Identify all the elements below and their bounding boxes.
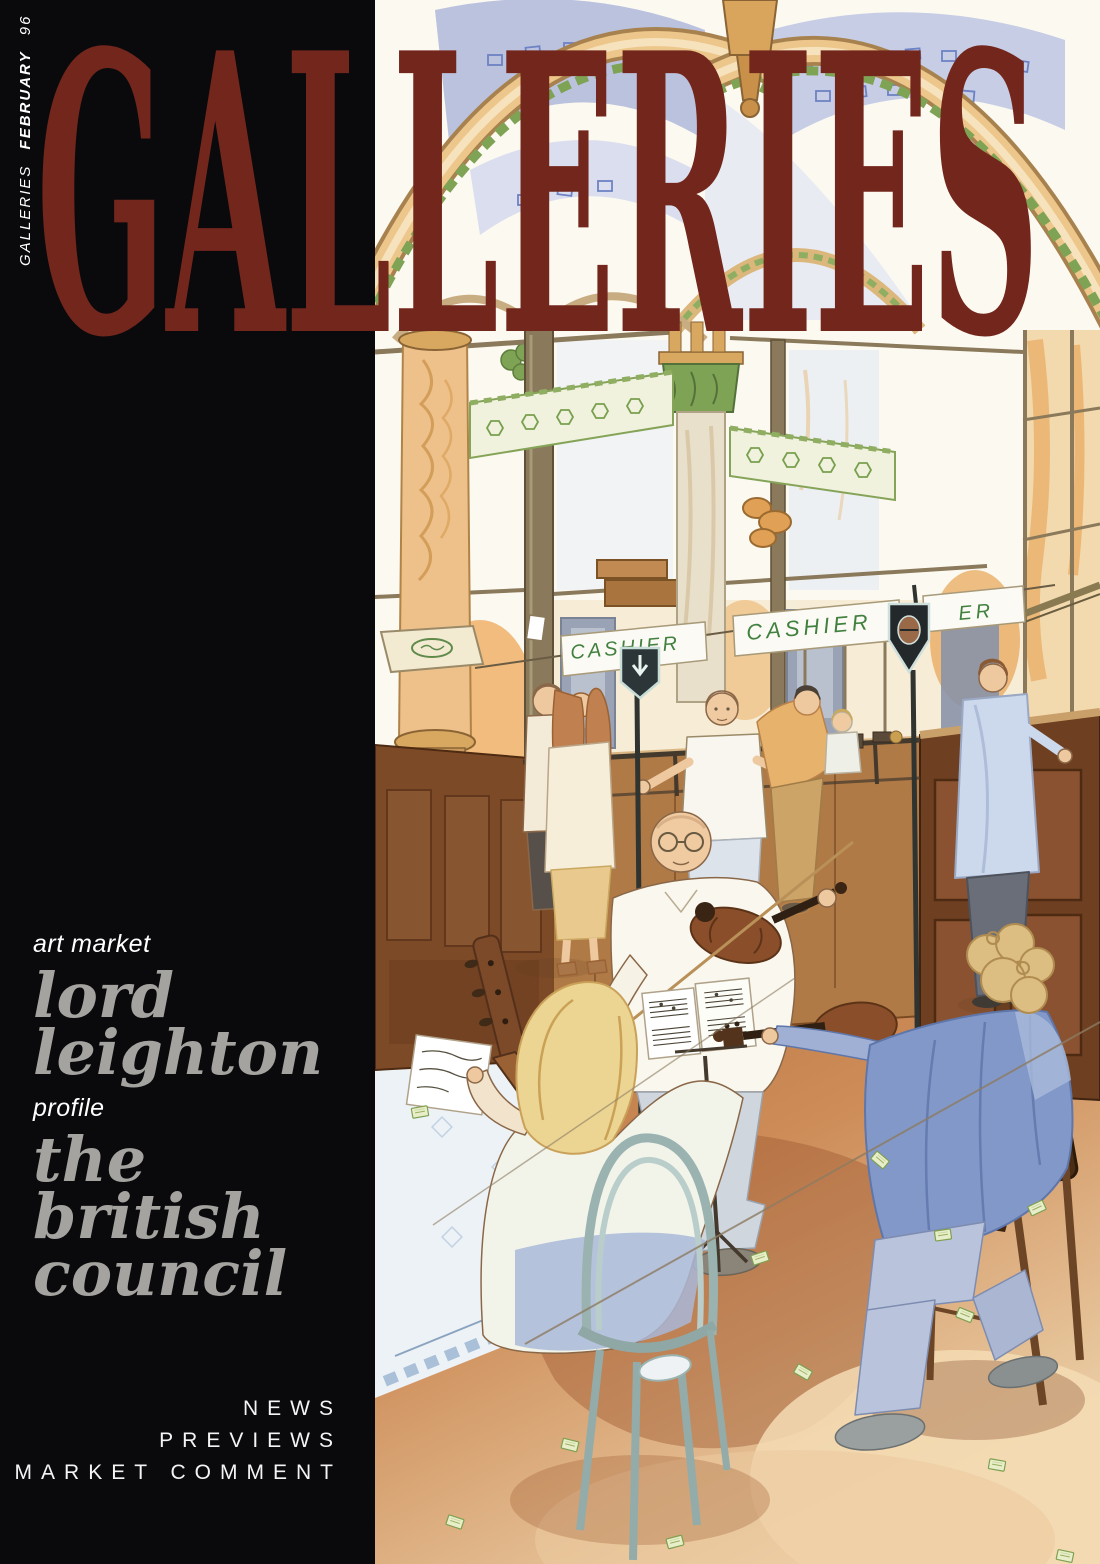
ochre-column: [395, 330, 475, 766]
issue-month: FEBRUARY: [17, 50, 34, 149]
issue-year: 96: [17, 15, 34, 36]
cashier-sign-partial: ER: [958, 600, 996, 625]
feature-title-line: leighton: [33, 1024, 323, 1081]
left-panel: [0, 0, 375, 1564]
feature-profile: profile the british council: [33, 1094, 287, 1302]
contents-item: MARKET COMMENT: [15, 1457, 342, 1489]
feature-kicker: profile: [33, 1094, 287, 1123]
issue-info: GALLERIES FEBRUARY 96: [17, 15, 34, 266]
feature-kicker: art market: [33, 930, 323, 959]
issue-magazine-name: GALLERIES: [17, 165, 34, 266]
contents-item: NEWS: [15, 1393, 342, 1425]
magazine-cover: CASHIER CASHIER ER: [0, 0, 1100, 1564]
contents-item: PREVIEWS: [15, 1425, 342, 1457]
feature-art-market: art market lord leighton: [33, 930, 323, 1081]
cover-illustration: CASHIER CASHIER ER: [375, 0, 1100, 1564]
feature-title-line: council: [33, 1245, 287, 1302]
awning-sign: [381, 626, 483, 672]
contents-list: NEWS PREVIEWS MARKET COMMENT: [15, 1393, 342, 1489]
